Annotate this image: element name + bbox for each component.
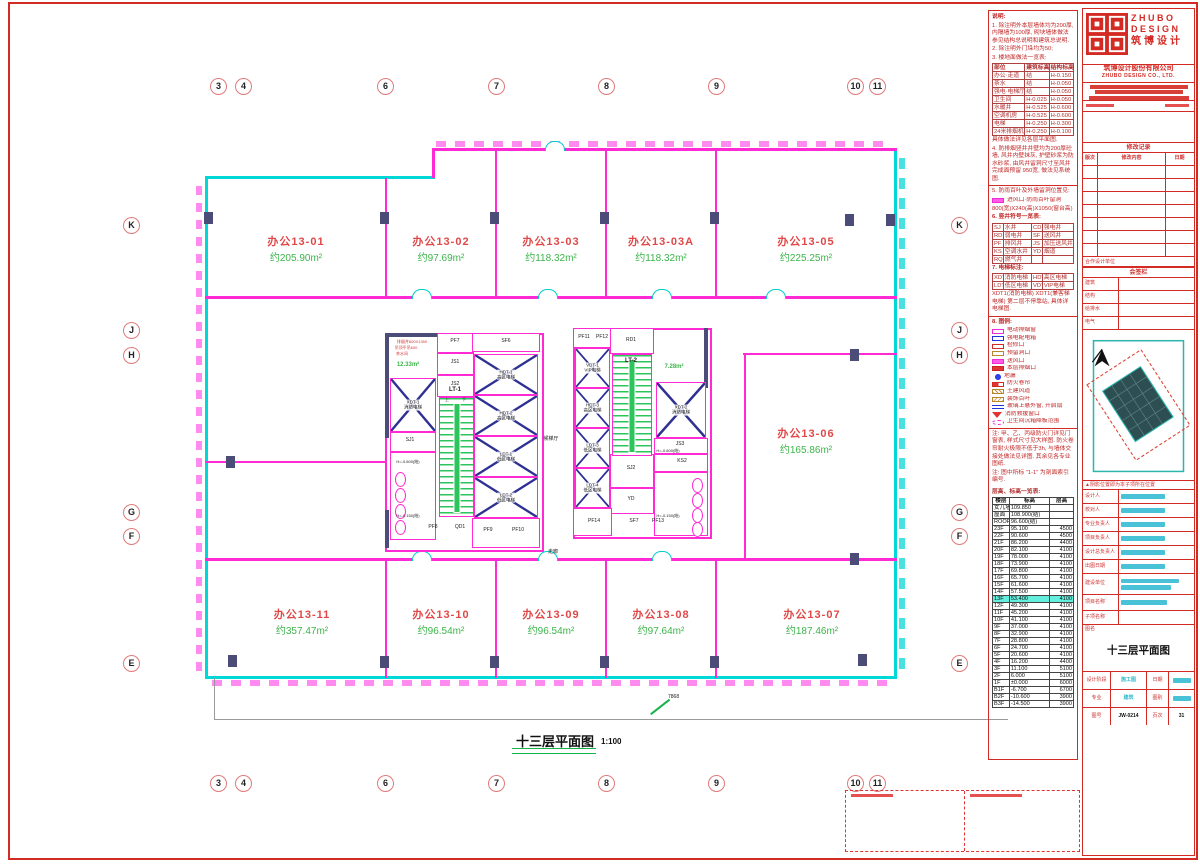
sign-header: 会签栏 [1083, 268, 1194, 278]
floor-row: 19F78.0004100 [993, 554, 1074, 561]
legend-swatch [992, 405, 1004, 409]
floor-row: B3F-14.5003900 [993, 701, 1074, 708]
room-label: 办公13-07约187.46m² [783, 606, 840, 637]
shaft-label: QD1 [455, 525, 465, 530]
page-number: 31 [1169, 708, 1194, 725]
shaft-label: PF12 [596, 335, 608, 340]
shaft-label: SJ1 [406, 438, 415, 443]
room-label: 办公13-01约205.90m² [267, 233, 324, 264]
door-arc [766, 289, 786, 299]
curtain-wall [205, 176, 208, 678]
elevator-row: XDT消防电梯HDT高区电梯 [993, 274, 1074, 282]
structural-column [490, 212, 499, 224]
legend-swatch [992, 336, 1004, 341]
room-label: 办公13-11约357.47m² [274, 606, 331, 637]
company-name: 筑博设计股份有限公司 ZHUBO DESIGN CO., LTD. [1083, 65, 1194, 79]
legend-swatch [992, 382, 1004, 387]
stage-row: 设计阶段 施工图 日期 [1083, 672, 1194, 690]
personnel-row: 专业负责人 [1083, 518, 1194, 532]
room-label: 办公13-02约97.69m² [412, 233, 469, 264]
project-row: 项目名称 [1083, 595, 1194, 611]
lobby-label: 候梯厅 [543, 437, 558, 442]
grid-bubble-row: H [951, 347, 968, 364]
finish-row: 办公·走道结H-0.150 [993, 72, 1074, 80]
elevator-fire: XDT-1消防电梯 [390, 378, 436, 432]
wall [605, 150, 607, 298]
stair-up: 上 [445, 398, 449, 402]
room-label: 办公13-03约118.32m² [522, 233, 579, 264]
grid-bubble-col: 3 [210, 775, 227, 792]
legend: 电动排烟窗 强电配电箱 检修口 预留洞口 送风口 本层排烟口 地漏 [992, 327, 1074, 426]
grid-bubble-col: 9 [708, 78, 725, 95]
wc-fixture [692, 493, 703, 508]
floor-row: 17F69.8004100 [993, 568, 1074, 575]
keyplan-note: ▲阴影位置即为本子项所在位置 [1083, 481, 1194, 490]
shaft-cell [472, 518, 540, 548]
wall [743, 353, 897, 355]
door-arc [652, 289, 672, 299]
grid-bubble-col: 9 [708, 775, 725, 792]
shaft-label: PF13 [652, 519, 664, 524]
note-7a: XDT1(消防电梯) XDT1(兼客梯电梯) 第二层不停靠站, 具体详电梯图. [992, 291, 1074, 314]
legend-swatch [992, 329, 1004, 334]
door-arc [538, 289, 558, 299]
structural-column [710, 656, 719, 668]
title-block: ZHUBO DESIGN 筑博设计 筑博设计股份有限公司 ZHUBO DESIG… [1082, 8, 1195, 856]
wall [432, 148, 435, 178]
notes-column: 说明: 1. 除注明外本层墙体均为200厚, 内隔墙为100厚, 砌块墙体做法参… [988, 10, 1078, 760]
certificate-box [1083, 101, 1194, 143]
structural-column [226, 456, 235, 468]
floor-row: 21F86.2004400 [993, 540, 1074, 547]
note-z1: 注: 甲、乙、丙级防火门详见门窗表, 样式尺寸见大样图. 防火卷帘耐火极限不低于… [992, 431, 1074, 469]
legend-swatch [992, 359, 1004, 364]
wc-fixture [395, 520, 406, 535]
north-arrow-icon [1092, 349, 1109, 366]
personnel-row: 项目负责人 [1083, 532, 1194, 546]
structural-column [850, 349, 859, 361]
wc-fixture [395, 472, 406, 487]
grid-bubble-col: 7 [488, 78, 505, 95]
shaft-label: PF10 [512, 528, 524, 533]
window-strip [899, 158, 905, 670]
level-note: H=-0.600(结) [396, 460, 419, 464]
revision-header: 修改记录 [1083, 143, 1194, 153]
room-label: 办公13-08约97.64m² [632, 606, 689, 637]
room-name: 茶水间 [396, 352, 408, 356]
structural-column [858, 654, 867, 666]
legend-row: 地漏 [992, 373, 1074, 381]
wall [385, 178, 387, 298]
note-2: 2. 除注明外门垛均为50; [992, 46, 1074, 54]
legend-swatch [992, 412, 1002, 418]
floor-plan: 3 4 6 7 8 9 10 11 3 4 6 7 8 9 10 11 K J … [0, 0, 985, 866]
zhubo-logo-icon [1086, 13, 1128, 55]
floor-table: 楼层标高层高 女儿墙109.850 屋面108.900(结) ROOF96.60… [992, 497, 1074, 708]
elevator: LDT-4低区电梯 [575, 468, 610, 508]
legend-swatch [992, 366, 1004, 371]
finish-row: 茶水结H-0.050 [993, 80, 1074, 88]
shaft-label: SF6 [501, 339, 510, 344]
grid-bubble-col: 11 [869, 78, 886, 95]
grid-bubble-row: H [123, 347, 140, 364]
floor-table-title: 层高、标高一览表: [992, 489, 1074, 497]
structural-column [380, 656, 389, 668]
legend-swatch [992, 397, 1004, 402]
shaft-label: JS1 [451, 360, 460, 365]
notes-title: 说明: [992, 14, 1074, 22]
shaft-table: SJ水井CD强电井 RD弱电井SF送风井 PF排风井JS加压送风井 KS空调水井… [992, 223, 1074, 264]
floor-row: 9F37.0004100 [993, 624, 1074, 631]
finish-table: 部位建筑标高结构标高 办公·走道结H-0.150 茶水结H-0.050 强电·电… [992, 63, 1074, 136]
structural-column [850, 553, 859, 565]
grid-bubble-row: F [951, 528, 968, 545]
logo-text: ZHUBO DESIGN 筑博设计 [1131, 13, 1183, 48]
legend-row: 检修口 [992, 342, 1074, 350]
elevator: HDT-1高区电梯 [474, 354, 538, 395]
legend-row: 土建风道 [992, 388, 1074, 396]
grid-bubble-row: E [951, 655, 968, 672]
elevator: LDT-3低区电梯 [575, 428, 610, 468]
legend-row: 卫生间沉箱降板范围 [992, 418, 1074, 426]
shear-wall [704, 328, 708, 388]
note-6: 6. 竖井符号一览表: [992, 214, 1074, 222]
floor-row: 3F11.1005100 [993, 666, 1074, 673]
note-4: 4. 防排烟竖井井壁均为200厚砼墙, 风井内壁抹灰, 护壁砂浆为防水砂浆, 由… [992, 146, 1074, 184]
company-address [1083, 83, 1194, 101]
legend-row: 送风口 [992, 358, 1074, 366]
level-note: H=-0.150(结) [396, 514, 419, 518]
floor-row: 1F±0.0006000 [993, 680, 1074, 687]
elevator: VDT-1VIP电梯 [575, 348, 610, 388]
grid-bubble-col: 7 [488, 775, 505, 792]
grid-bubble-row: G [123, 504, 140, 521]
wall [715, 150, 717, 298]
structural-column [710, 212, 719, 224]
number-row: 图号 JW-0214 页次 31 [1083, 708, 1194, 725]
grid-bubble-col: 6 [377, 78, 394, 95]
stamp-area [845, 790, 1080, 852]
room-label: 办公13-10约96.54m² [412, 606, 469, 637]
window-strip [212, 680, 894, 686]
note-7: 7. 电梯标注: [992, 265, 1074, 273]
floor-row: 6F24.7004100 [993, 645, 1074, 652]
drawing-name: 十三层平面图 [1107, 643, 1170, 658]
structural-column [490, 656, 499, 668]
shaft-label: YD [628, 497, 635, 502]
legend-row: 防火卷帘 [992, 380, 1074, 388]
finish-row: 24米排烟机房H-0.250H-0.100 [993, 128, 1074, 136]
floor-row: 18F73.9004100 [993, 561, 1074, 568]
coop-label: 合作设计单位 [1083, 257, 1194, 267]
note-5: 5. 防雨百叶及外墙留洞位置见: [992, 188, 1074, 196]
finish-row: 电梯H-0.250H-0.300 [993, 120, 1074, 128]
legend-swatch [992, 389, 1004, 394]
revision-table: 版次修改内容日期 [1083, 153, 1194, 257]
wc-fixture [692, 478, 703, 493]
floor-row: 5F20.6004100 [993, 652, 1074, 659]
grid-bubble-col: 4 [235, 775, 252, 792]
floor-row: B1F-6.7006700 [993, 687, 1074, 694]
structural-column [228, 655, 237, 667]
level-note: H=-0.600(结) [656, 449, 679, 453]
stair-label: LT-2 [625, 358, 637, 364]
wc-fixture [395, 488, 406, 503]
grid-bubble-row: J [123, 322, 140, 339]
shaft-label: JS3 [676, 442, 685, 447]
personnel-row: 校对人 [1083, 504, 1194, 518]
grid-bubble-col: 10 [847, 78, 864, 95]
personnel-row: 设计人 [1083, 490, 1194, 504]
floor-row: 7F28.8004100 [993, 638, 1074, 645]
elevator: HDT-3高区电梯 [575, 388, 610, 428]
subproject-row: 子项名称 [1083, 611, 1194, 625]
annotation: 排烟井600X1350 [397, 340, 427, 344]
room-label: 办公13-06约165.86m² [777, 425, 834, 456]
personnel-row: 出图日期 [1083, 560, 1194, 574]
corridor-label: 走廊 [548, 550, 558, 555]
grid-bubble-row: K [951, 217, 968, 234]
note-1: 1. 除注明外本层墙体均为200厚, 内隔墙为100厚, 砌块墙体做法参见结构总… [992, 23, 1074, 46]
projection-line [214, 678, 215, 720]
plan-scale: 1:100 [601, 737, 621, 746]
legend-swatch [995, 374, 1001, 380]
title-underline [512, 748, 596, 754]
floor-row: B2F-10.6003900 [993, 694, 1074, 701]
shear-wall [385, 510, 389, 548]
key-plan [1083, 330, 1194, 481]
finish-row: 空调机房H-0.525H-0.600 [993, 112, 1074, 120]
wall [744, 355, 746, 560]
elevator: LDT-1低区电梯 [474, 436, 538, 477]
floor-row: 12F49.3004100 [993, 603, 1074, 610]
floor-row: 23F95.1004500 [993, 526, 1074, 533]
elevator-row: LDT低区电梯VDTVIP电梯 [993, 282, 1074, 290]
elevator-table: XDT消防电梯HDT高区电梯 LDT低区电梯VDTVIP电梯 [992, 273, 1074, 290]
finish-row: 水暖井H-0.525H-0.600 [993, 104, 1074, 112]
floor-row: ROOF96.600(结) [993, 519, 1074, 526]
wall [432, 148, 897, 151]
door-arc [652, 551, 672, 561]
shaft-label: PF9 [483, 528, 492, 533]
grid-bubble-row: F [123, 528, 140, 545]
stamp-text [970, 794, 1022, 797]
floor-row: 16F65.7004100 [993, 575, 1074, 582]
finish-note: 具体做法详见各层平面图. [992, 137, 1074, 145]
stair-lt2 [612, 354, 652, 456]
wc-fixture [692, 508, 703, 523]
room-label: 办公13-05约225.25m² [777, 233, 834, 264]
legend-swatch [992, 420, 1004, 425]
shaft-row: SJ水井CD强电井 [993, 224, 1074, 232]
floor-row: 屋面108.900(结) [993, 512, 1074, 519]
personnel-table: 设计人 校对人 专业负责人 项目负责人 设计总负责人 出图日期 [1083, 490, 1194, 574]
owner-row: 建设单位 [1083, 574, 1194, 595]
curtain-wall [205, 676, 897, 679]
shear-wall [385, 333, 389, 438]
shaft-label: SJ2 [627, 466, 636, 471]
drawing-name-cell: 图名 十三层平面图 [1083, 625, 1194, 672]
floor-row: 4F16.2004400 [993, 659, 1074, 666]
structural-column [204, 212, 213, 224]
door-arc [412, 551, 432, 561]
window-strip [436, 141, 884, 147]
grid-bubble-row: E [123, 655, 140, 672]
elevator: HDT-2高区电梯 [474, 395, 538, 436]
grid-bubble-row: K [123, 217, 140, 234]
curtain-wall [205, 176, 435, 179]
legend-row: 装饰百叶 [992, 396, 1074, 404]
grid-bubble-row: G [951, 504, 968, 521]
sign-table: 建筑 结构 给排水 电气 [1083, 278, 1194, 330]
shaft-label: PF7 [450, 339, 459, 344]
structural-column [600, 656, 609, 668]
floor-row: 8F32.9004100 [993, 631, 1074, 638]
room-label: 办公13-03A约118.32m² [628, 233, 694, 264]
legend-swatch [992, 344, 1004, 349]
shaft-label: PF8 [428, 525, 437, 530]
finish-row: 卫生间H-0.025H-0.050 [993, 96, 1074, 104]
curtain-wall [894, 148, 897, 679]
floor-row: 20F82.1004100 [993, 547, 1074, 554]
floor-row: 13F53.4004100 [993, 596, 1074, 603]
drawing-number: JW-0214 [1111, 708, 1147, 725]
note-8: 8. 图例: [992, 319, 1074, 327]
elevator: LDT-2低区电梯 [474, 477, 538, 518]
personnel-row: 设计总负责人 [1083, 546, 1194, 560]
shaft-row: RD弱电井SF送风井 [993, 232, 1074, 240]
finish-row: 强电·电梯厅结H-0.050 [993, 88, 1074, 96]
shaft-label: PF14 [588, 519, 600, 524]
vent-swatch [992, 198, 1004, 203]
legend-swatch [992, 351, 1004, 356]
legend-row: 本层排烟口 [992, 365, 1074, 373]
dimension-text: 7868 [668, 694, 679, 700]
sign-row: 建筑 [1083, 278, 1194, 291]
sign-row: 结构 [1083, 291, 1194, 304]
shaft-label: PF11 [578, 335, 590, 340]
floor-row: 15F61.6004100 [993, 582, 1074, 589]
legend-row: 电动排烟窗 [992, 327, 1074, 335]
grid-bubble-col: 6 [377, 775, 394, 792]
grid-bubble-col: 8 [598, 78, 615, 95]
grid-bubble-col: 3 [210, 78, 227, 95]
floor-row: 10F41.1004100 [993, 617, 1074, 624]
vent-sample: 进风口·防雨百叶留洞 [992, 197, 1074, 205]
wc-fixture [692, 522, 703, 537]
door-arc [412, 289, 432, 299]
shaft-row: PF排风井JS加压送风井 [993, 240, 1074, 248]
note-5b: 800(宽)X240(高)X1050(窗台高) [992, 206, 1074, 214]
floor-row: 女儿墙109.850 [993, 505, 1074, 512]
shaft-label: KS2 [677, 459, 686, 464]
floor-row: 11F45.2004100 [993, 610, 1074, 617]
floor-row: 2F6.0005100 [993, 673, 1074, 680]
major-row: 专业 建筑 图别 [1083, 690, 1194, 708]
structural-column [845, 214, 854, 226]
sign-row: 给排水 [1083, 304, 1194, 317]
shaft-cell [610, 454, 654, 488]
stair-down: 下 [462, 398, 466, 402]
shaft-row: KS空调水井YD烟道 [993, 248, 1074, 256]
grid-bubble-col: 8 [598, 775, 615, 792]
legend-row: 消防救援窗口 [992, 411, 1074, 419]
shaft-label: RD1 [626, 338, 636, 343]
leader-line [650, 699, 670, 715]
annotation: 吊顶平吊600 [395, 346, 418, 350]
legend-row: 预留洞口 [992, 350, 1074, 358]
elevator-fire: XDT-2消防电梯 [656, 382, 706, 438]
area-label: 12.33m² [397, 362, 419, 368]
shaft-label: SF7 [629, 519, 638, 524]
structural-column [380, 212, 389, 224]
structural-column [886, 214, 895, 226]
grid-bubble-col: 4 [235, 78, 252, 95]
sign-row: 电气 [1083, 317, 1194, 330]
stamp-text [851, 794, 893, 797]
legend-row: 玻璃上悬外窗, 开启扇 [992, 403, 1074, 411]
stair-label: LT-1 [449, 387, 461, 393]
level-note: H=-0.150(结) [656, 514, 679, 518]
grid-bubble-row: J [951, 322, 968, 339]
structural-column [600, 212, 609, 224]
floor-row: 22F90.6004500 [993, 533, 1074, 540]
door-arc [545, 141, 565, 151]
stair-lt1 [439, 397, 474, 517]
wall [495, 150, 497, 298]
projection-line [214, 719, 1008, 720]
area-label: 7.28m² [664, 364, 683, 370]
shaft-row: RQ燃气井 [993, 256, 1074, 264]
window-strip [196, 186, 202, 672]
room-label: 办公13-09约96.54m² [522, 606, 579, 637]
floor-row: 14F57.5004100 [993, 589, 1074, 596]
legend-row: 强电配电箱 [992, 335, 1074, 343]
note-3: 3. 楼地面做法一览表: [992, 55, 1074, 63]
note-z2: 注: 图中所标 "1-1" 为剖面索引编号. [992, 470, 1074, 485]
